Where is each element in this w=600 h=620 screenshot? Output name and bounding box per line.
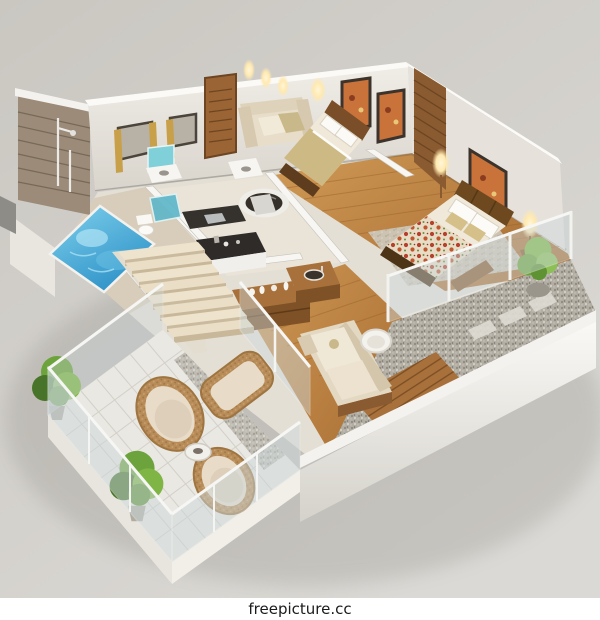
wall-light — [243, 59, 255, 81]
shower-glass — [150, 194, 181, 222]
table-lamp — [310, 77, 326, 103]
floor-plan-render: freepicture.cc — [0, 0, 600, 620]
wall-light — [277, 75, 289, 97]
basin-bowl — [241, 166, 251, 171]
round-chair — [361, 330, 391, 353]
sink-bowl — [159, 170, 169, 175]
brick-shower-wall — [15, 88, 92, 215]
side-table — [185, 444, 211, 461]
wall-art — [378, 90, 404, 142]
watermark: freepicture.cc — [0, 598, 600, 620]
screenshot: freepicture.cc — [0, 0, 600, 620]
watermark-text: freepicture.cc — [248, 600, 351, 618]
entry-door — [205, 74, 236, 158]
wall-light — [260, 67, 272, 89]
